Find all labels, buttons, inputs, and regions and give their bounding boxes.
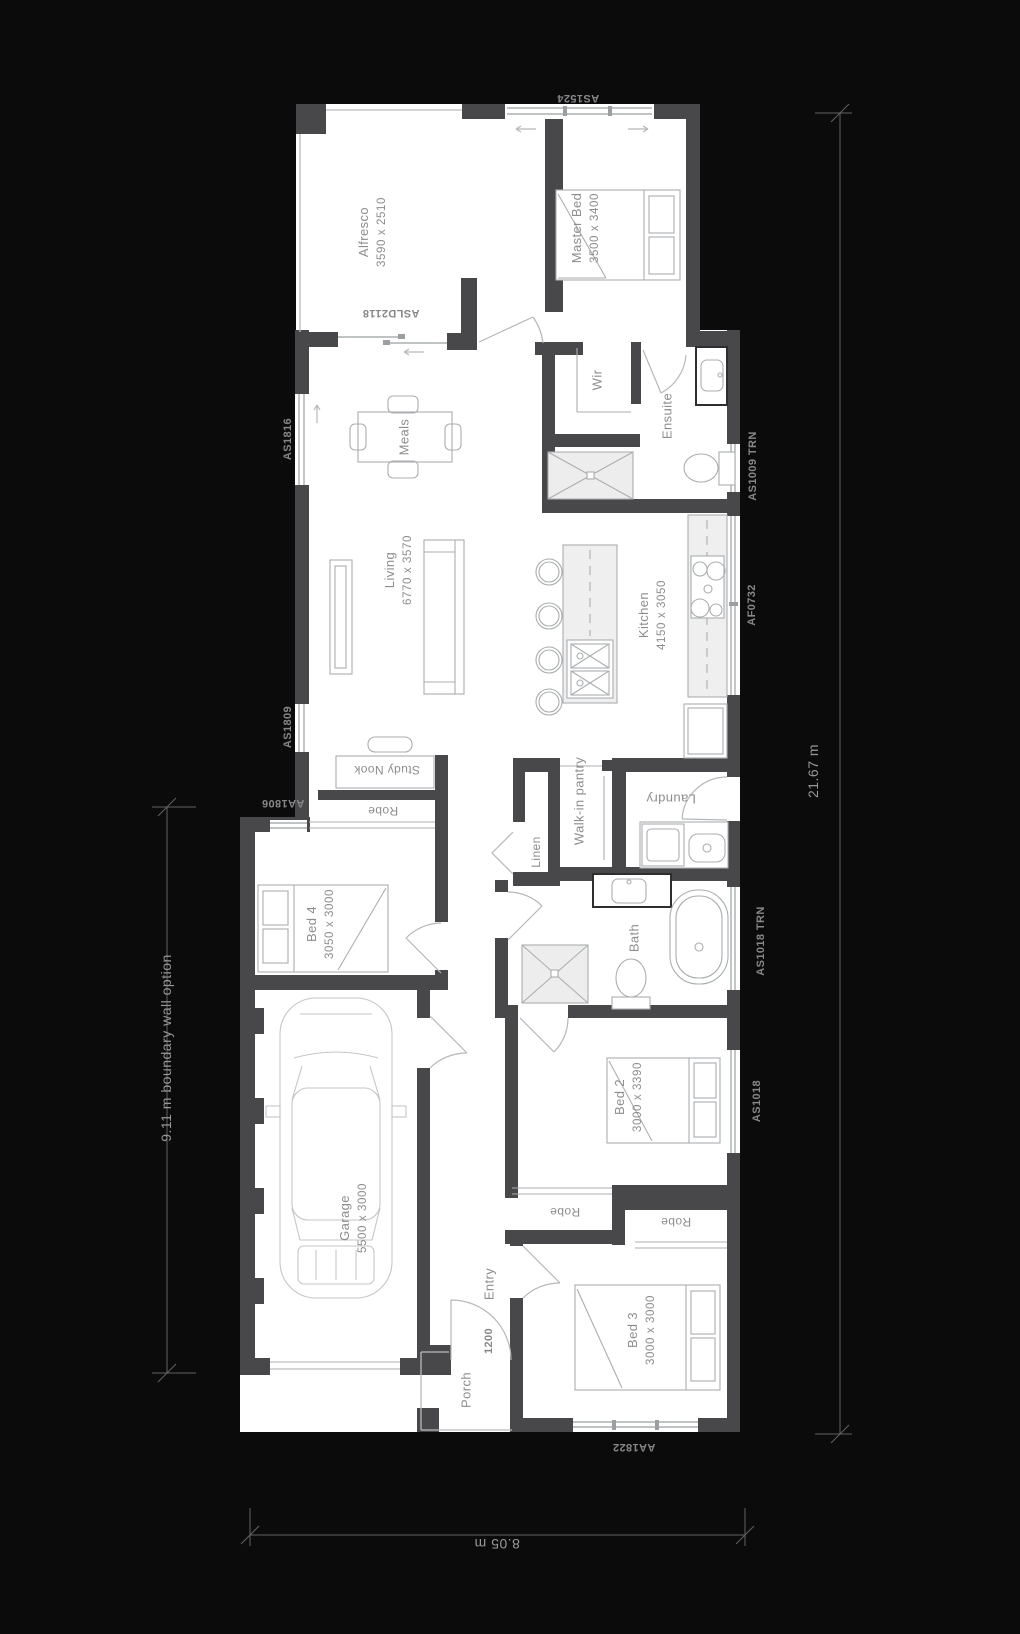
- room-label-alfresco: Alfresco 3590 x 2510: [356, 197, 390, 267]
- room-label-study-nook: Study Nook: [354, 763, 420, 777]
- dim-boundary-note: boundary wall option: [158, 954, 174, 1092]
- bed4-name: Bed 4: [304, 906, 319, 942]
- code-as1524: AS1524: [557, 92, 599, 104]
- kitchen-size: 4150 x 3050: [655, 580, 670, 650]
- code-aa1806: AA1806: [262, 797, 305, 809]
- window-aa1822: [573, 1418, 698, 1432]
- room-label-bed2: Bed 2 3000 x 3390: [612, 1062, 646, 1132]
- code-asld2118: ASLD2118: [362, 307, 419, 319]
- bath-shower: [522, 945, 588, 1003]
- laundry-appliances: [640, 822, 728, 868]
- floor-plan-drawing: [0, 0, 1020, 1634]
- alfresco-size: 3590 x 2510: [375, 197, 390, 267]
- kitchen-name: Kitchen: [636, 592, 651, 638]
- ensuite-shower: [548, 452, 633, 499]
- window-aa1806: [270, 820, 307, 832]
- floor-plan-page: Alfresco 3590 x 2510 Master Bed 3500 x 3…: [0, 0, 1020, 1634]
- room-label-wir: Wir: [590, 370, 605, 391]
- dim-boundary-length: 9.11 m: [158, 1097, 174, 1142]
- bed2-name: Bed 2: [612, 1079, 627, 1115]
- fridge-space: [684, 704, 727, 758]
- bathtub-icon: [670, 890, 728, 984]
- sliding-door-asld2118: [338, 332, 447, 347]
- entry-width-label: 1200: [483, 1328, 495, 1354]
- room-label-robe-bed3: Robe: [661, 1215, 691, 1229]
- bed4-size: 3050 x 3000: [323, 889, 338, 959]
- window-as1816: [295, 394, 309, 485]
- room-label-walk-in-pantry: Walk-in pantry: [572, 757, 589, 845]
- room-label-linen: Linen: [529, 836, 543, 867]
- garage-name: Garage: [337, 1195, 352, 1241]
- room-label-garage: Garage 5500 x 3000: [337, 1183, 371, 1253]
- code-as1018: AS1018: [751, 1080, 763, 1122]
- code-as1018-trn: AS1018 TRN: [755, 906, 767, 975]
- code-as1809: AS1809: [282, 706, 294, 748]
- room-label-robe-bed4: Robe: [368, 804, 398, 818]
- kitchen-bench: [688, 515, 727, 697]
- dim-overall-width: 8.05 m: [474, 1536, 520, 1552]
- kitchen-island: [563, 545, 617, 703]
- room-label-bath: Bath: [627, 924, 642, 952]
- pantry-line1: Walk-in: [572, 799, 587, 845]
- room-label-entry: Entry: [482, 1268, 497, 1300]
- room-label-robe-bed2: Robe: [550, 1205, 580, 1219]
- room-label-bed3: Bed 3 3000 x 3000: [625, 1295, 659, 1365]
- alfresco-name: Alfresco: [356, 207, 371, 257]
- sofa-icon: [424, 540, 464, 694]
- living-size: 6770 x 3570: [401, 535, 416, 605]
- code-af0732: AF0732: [746, 584, 758, 626]
- ensuite-toilet: [684, 452, 735, 485]
- tv-unit-icon: [330, 560, 352, 674]
- bed2-size: 3000 x 3390: [631, 1062, 646, 1132]
- window-as1524: [505, 104, 654, 119]
- car-icon: [266, 998, 406, 1298]
- pantry-line2: pantry: [572, 757, 587, 796]
- room-label-porch: Porch: [459, 1372, 474, 1408]
- bed3-size: 3000 x 3000: [644, 1295, 659, 1365]
- garage-size: 5500 x 3000: [356, 1183, 371, 1253]
- ensuite-vanity: [696, 347, 727, 405]
- room-label-ensuite: Ensuite: [660, 393, 675, 439]
- room-label-kitchen: Kitchen 4150 x 3050: [636, 580, 670, 650]
- window-as1018-trn: [727, 887, 740, 990]
- room-label-master-bed: Master Bed 3500 x 3400: [569, 193, 603, 263]
- living-name: Living: [382, 552, 397, 588]
- code-aa1822: AA1822: [613, 1441, 656, 1453]
- code-as1009-trn: AS1009 TRN: [747, 431, 759, 500]
- window-as1809: [295, 704, 309, 752]
- window-af0732: [727, 516, 740, 695]
- master-bed-size: 3500 x 3400: [588, 193, 603, 263]
- bath-vanity: [593, 874, 671, 907]
- room-label-living: Living 6770 x 3570: [382, 535, 416, 605]
- master-bed-name: Master Bed: [569, 193, 584, 263]
- dim-overall-length: 21.67 m: [805, 744, 821, 798]
- dim-boundary: 9.11 m boundary wall option: [157, 954, 175, 1142]
- room-label-bed4: Bed 4 3050 x 3000: [304, 889, 338, 959]
- room-label-laundry: Laundry: [646, 792, 696, 807]
- room-label-meals: Meals: [397, 419, 412, 456]
- window-as1018: [727, 1050, 740, 1153]
- bed3-name: Bed 3: [625, 1312, 640, 1348]
- code-as1816: AS1816: [282, 418, 294, 460]
